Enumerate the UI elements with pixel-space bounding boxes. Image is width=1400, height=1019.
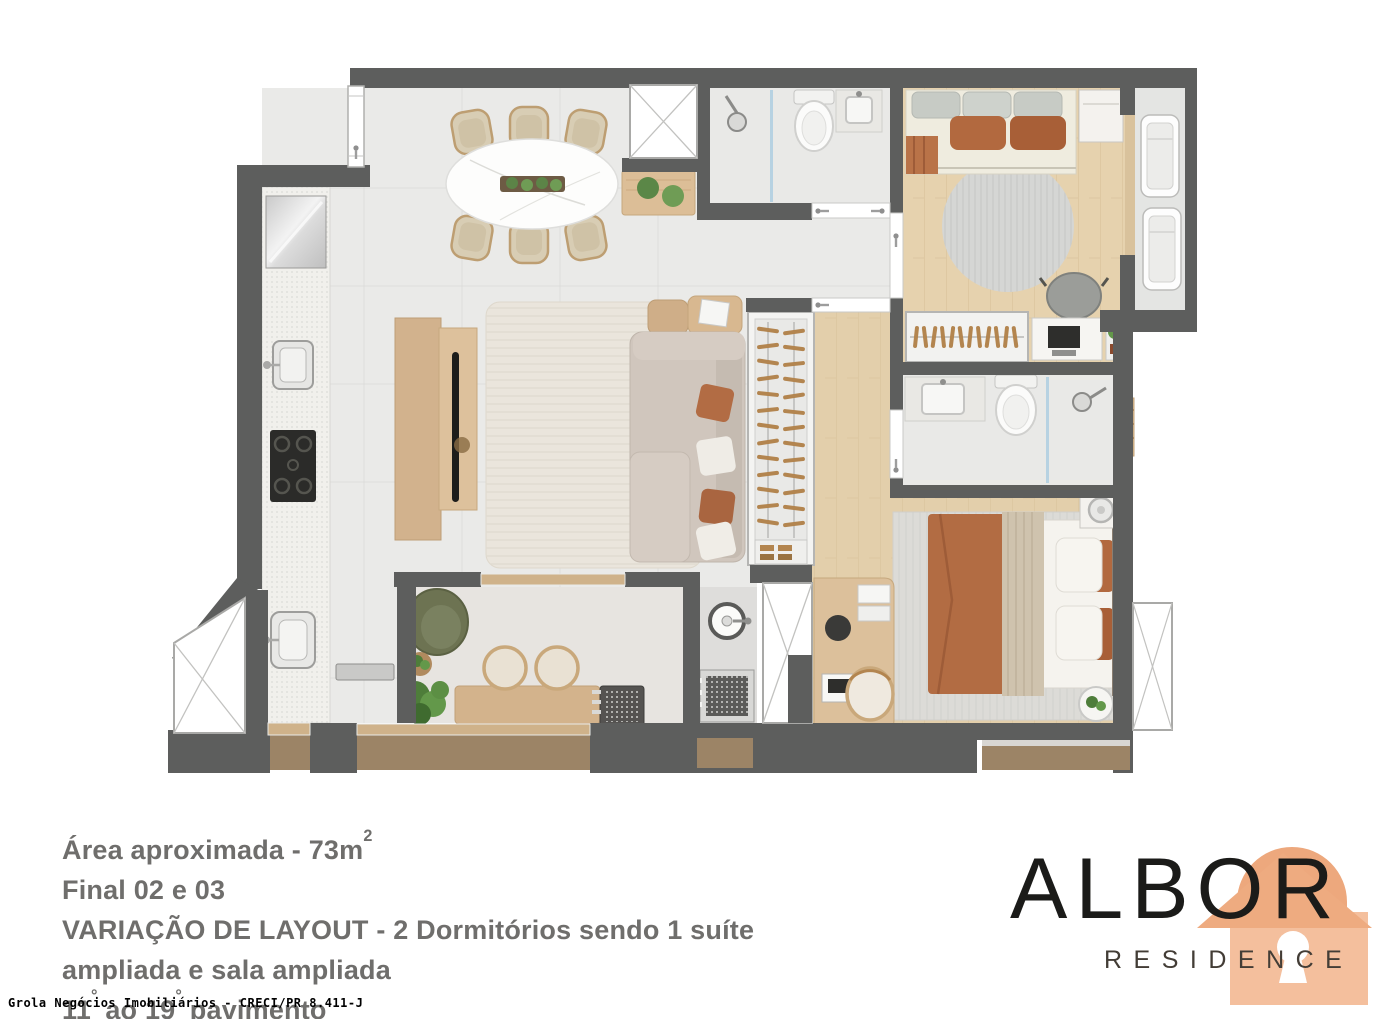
wall-top bbox=[350, 68, 1197, 88]
stool bbox=[484, 647, 526, 689]
footer-credit: Grola Negócios Imobiliários - CRECI/PR 8… bbox=[8, 996, 363, 1010]
double-bed bbox=[928, 512, 1120, 696]
dining-console bbox=[622, 170, 695, 215]
balcony-slider-threshold bbox=[357, 724, 590, 735]
wood-bench bbox=[455, 686, 600, 724]
throw-blanket bbox=[906, 136, 938, 174]
pillow bbox=[1014, 92, 1062, 118]
logo: ALBOR RESIDENCE bbox=[1000, 830, 1400, 1019]
tv-console bbox=[395, 318, 477, 540]
side-tables bbox=[648, 296, 742, 334]
caption-final: Final 02 e 03 bbox=[62, 870, 867, 910]
desk-object bbox=[825, 615, 851, 641]
pillow bbox=[1056, 538, 1102, 592]
pillow bbox=[950, 116, 1006, 150]
elevator-shaft bbox=[630, 85, 697, 158]
entry-door bbox=[348, 86, 364, 167]
counter-appliance bbox=[336, 664, 394, 680]
barbecue-grill bbox=[592, 686, 644, 726]
side-table-plant bbox=[1079, 687, 1113, 721]
pillow bbox=[912, 92, 960, 118]
cooktop bbox=[270, 430, 316, 502]
shower-glass bbox=[1046, 377, 1049, 483]
logo-title: ALBOR bbox=[1010, 846, 1342, 932]
pillow bbox=[698, 488, 736, 526]
nightstand bbox=[1079, 90, 1123, 142]
pillow bbox=[1056, 606, 1102, 660]
sofa bbox=[630, 332, 745, 562]
plant-icon bbox=[637, 177, 659, 199]
caption-layout: VARIAÇÃO DE LAYOUT - 2 Dormitórios sendo… bbox=[62, 910, 867, 990]
bedroom2-door bbox=[890, 213, 903, 298]
logo-tagline: RESIDENCE bbox=[1104, 948, 1353, 973]
caption-block: Área aproximada - 73m2 Final 02 e 03 VAR… bbox=[62, 830, 867, 1019]
desk bbox=[1032, 318, 1102, 360]
lounge-chair bbox=[1143, 208, 1181, 290]
pillow bbox=[695, 435, 736, 476]
caption-area: Área aproximada - 73m2 bbox=[62, 830, 867, 870]
toilet bbox=[995, 375, 1037, 435]
pillow bbox=[695, 383, 735, 423]
tv bbox=[452, 352, 459, 502]
wardrobe-corridor bbox=[748, 312, 814, 565]
duvet bbox=[928, 514, 1006, 694]
closet-shelf bbox=[755, 540, 807, 564]
shower-glass bbox=[770, 90, 773, 202]
circulation-floor bbox=[640, 213, 903, 310]
suite-chair bbox=[847, 668, 893, 720]
laptop bbox=[1048, 326, 1080, 348]
wall-right bbox=[1113, 310, 1133, 773]
single-bed bbox=[906, 90, 1076, 174]
washing-machine bbox=[694, 670, 754, 722]
floor-plan-image bbox=[0, 0, 1400, 800]
terrace-slider-threshold bbox=[481, 574, 625, 585]
stool bbox=[536, 647, 578, 689]
dining-table bbox=[446, 139, 618, 229]
utility-shaft bbox=[763, 583, 812, 723]
suite-window bbox=[1133, 603, 1172, 730]
lounge-chair bbox=[1141, 115, 1179, 197]
wall-left bbox=[237, 187, 262, 589]
wall-entry bbox=[237, 165, 370, 187]
floor-plan-page: Área aproximada - 73m2 Final 02 e 03 VAR… bbox=[0, 0, 1400, 1019]
sink-vanity bbox=[836, 90, 882, 132]
sink-vanity bbox=[905, 377, 985, 421]
kitchen-door-threshold bbox=[268, 723, 310, 735]
pillow bbox=[963, 92, 1011, 118]
bedroom2-closet bbox=[906, 312, 1028, 362]
plant-icon bbox=[662, 185, 684, 207]
toilet bbox=[794, 90, 834, 151]
pillow bbox=[1010, 116, 1066, 150]
